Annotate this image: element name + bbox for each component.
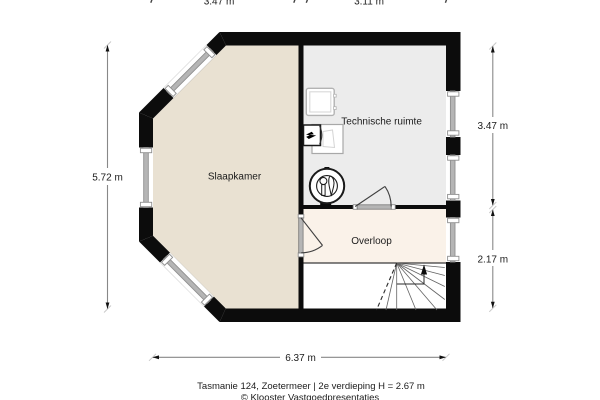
svg-text:Tasmanie 124, Zoetermeer | 2e: Tasmanie 124, Zoetermeer | 2e verdieping…	[197, 381, 425, 392]
svg-text:Overloop: Overloop	[351, 236, 392, 247]
svg-text:3.11 m: 3.11 m	[354, 0, 384, 7]
svg-text:2.17 m: 2.17 m	[478, 254, 509, 265]
svg-text:3.47 m: 3.47 m	[478, 121, 509, 132]
svg-text:5.72 m: 5.72 m	[92, 173, 123, 184]
svg-text:3.47 m: 3.47 m	[204, 0, 235, 7]
svg-text:Technische ruimte: Technische ruimte	[341, 117, 422, 128]
svg-text:6.37 m: 6.37 m	[285, 353, 316, 364]
svg-text:Slaapkamer: Slaapkamer	[208, 172, 262, 183]
svg-text:© Klooster Vastgoedpresentatie: © Klooster Vastgoedpresentaties	[241, 393, 380, 400]
